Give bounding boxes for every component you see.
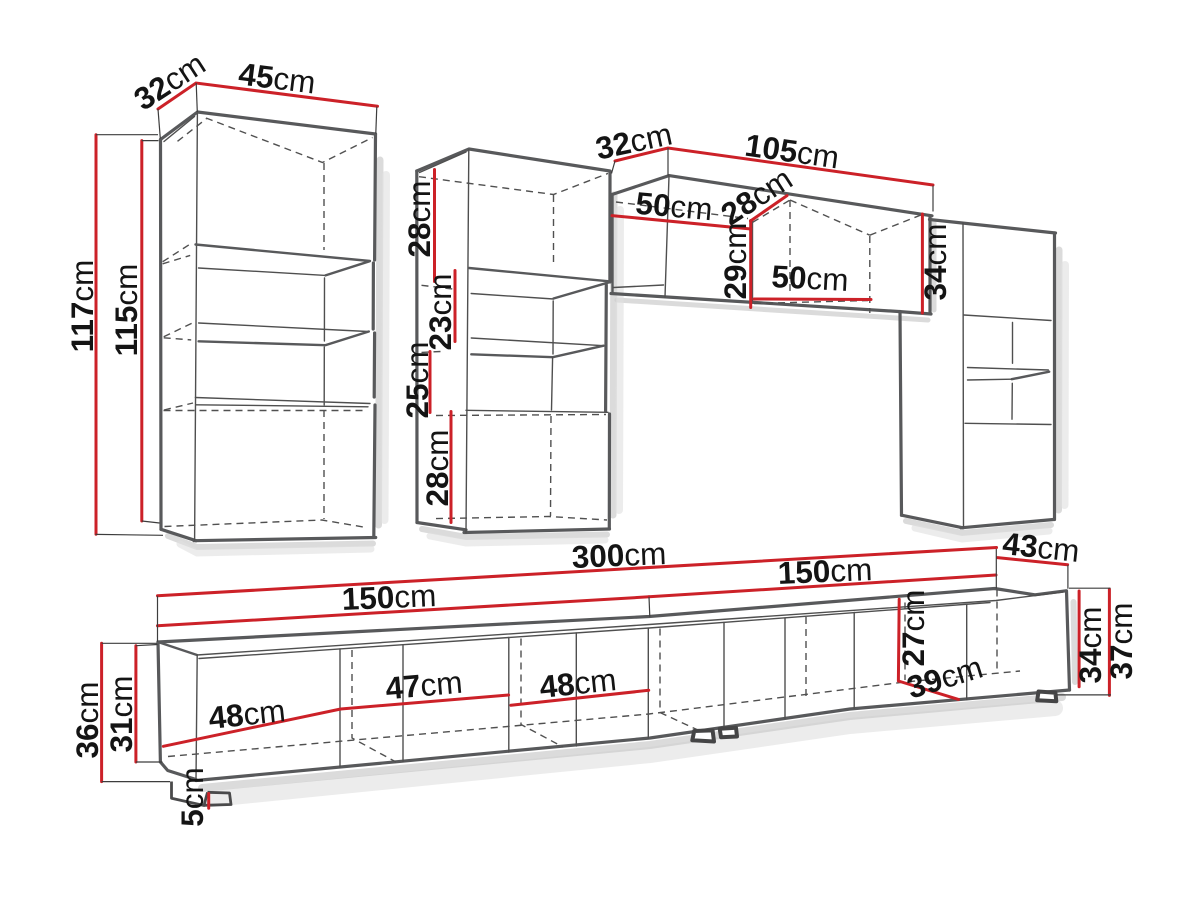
svg-text:28cm: 28cm xyxy=(419,429,455,506)
svg-text:115cm: 115cm xyxy=(108,264,144,357)
svg-text:29cm: 29cm xyxy=(717,222,753,299)
svg-text:50cm: 50cm xyxy=(771,258,850,298)
svg-text:37cm: 37cm xyxy=(1103,602,1139,679)
svg-text:31cm: 31cm xyxy=(103,675,139,752)
svg-text:36cm: 36cm xyxy=(69,681,105,758)
svg-text:27cm: 27cm xyxy=(895,589,931,666)
svg-text:150cm: 150cm xyxy=(341,577,437,617)
svg-text:117cm: 117cm xyxy=(64,260,100,353)
svg-text:34cm: 34cm xyxy=(917,223,953,300)
svg-text:23cm: 23cm xyxy=(422,273,458,350)
svg-text:25cm: 25cm xyxy=(399,341,435,418)
svg-text:150cm: 150cm xyxy=(777,551,873,591)
svg-text:47cm: 47cm xyxy=(384,664,464,707)
svg-text:300cm: 300cm xyxy=(571,535,667,575)
svg-text:28cm: 28cm xyxy=(401,180,437,257)
svg-text:5cm: 5cm xyxy=(174,767,210,827)
svg-text:50cm: 50cm xyxy=(634,185,714,228)
